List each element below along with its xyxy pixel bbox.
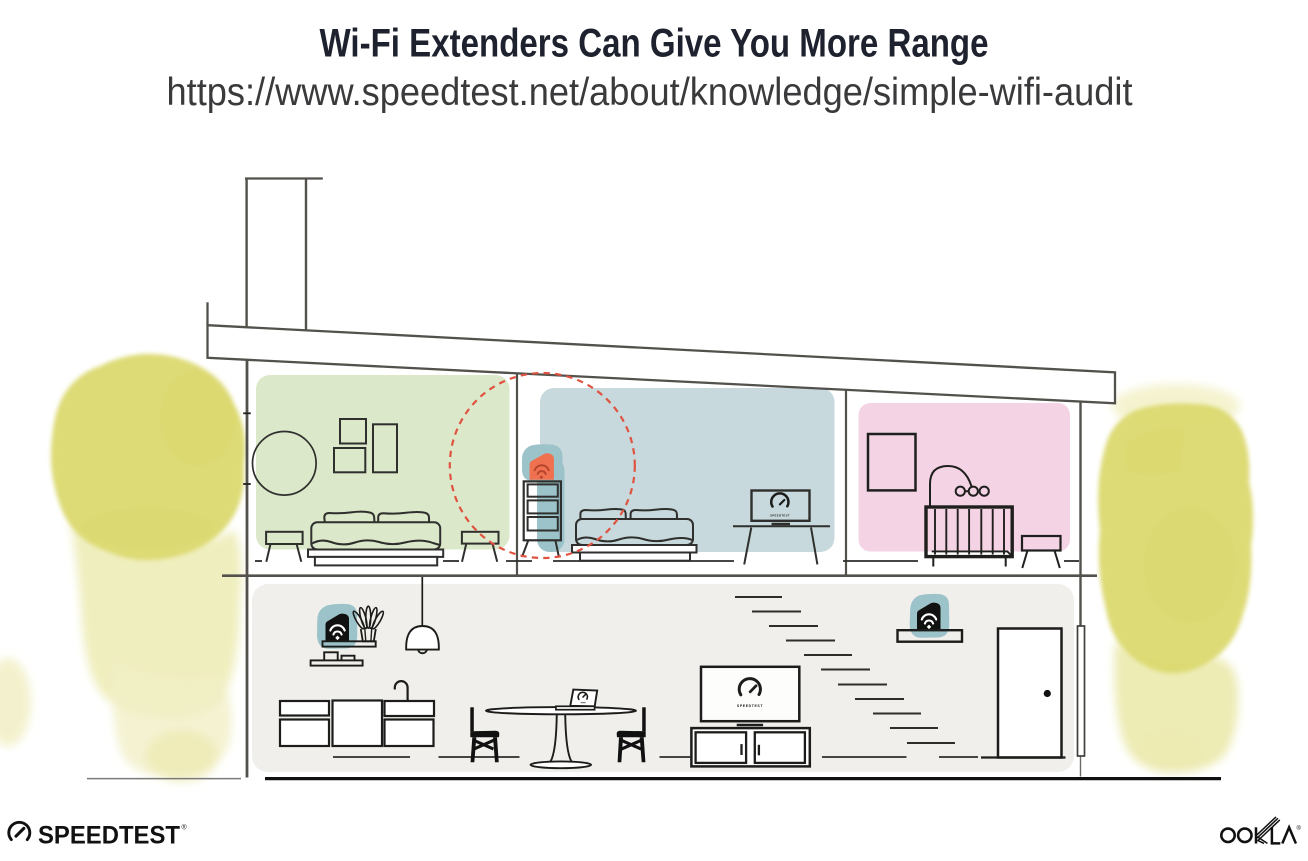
svg-text:https://www.speedtest.net/abou: https://www.speedtest.net/about/knowledg… <box>167 71 1133 114</box>
svg-text:SPEEDTEST: SPEEDTEST <box>770 513 790 517</box>
svg-text:®: ® <box>182 824 188 832</box>
svg-text:SPEEDTEST: SPEEDTEST <box>38 822 180 850</box>
svg-text:®: ® <box>1297 825 1302 832</box>
svg-text:SPEEDTEST: SPEEDTEST <box>737 704 763 708</box>
svg-text:Wi-Fi Extenders Can Give You M: Wi-Fi Extenders Can Give You More Range <box>320 21 989 65</box>
